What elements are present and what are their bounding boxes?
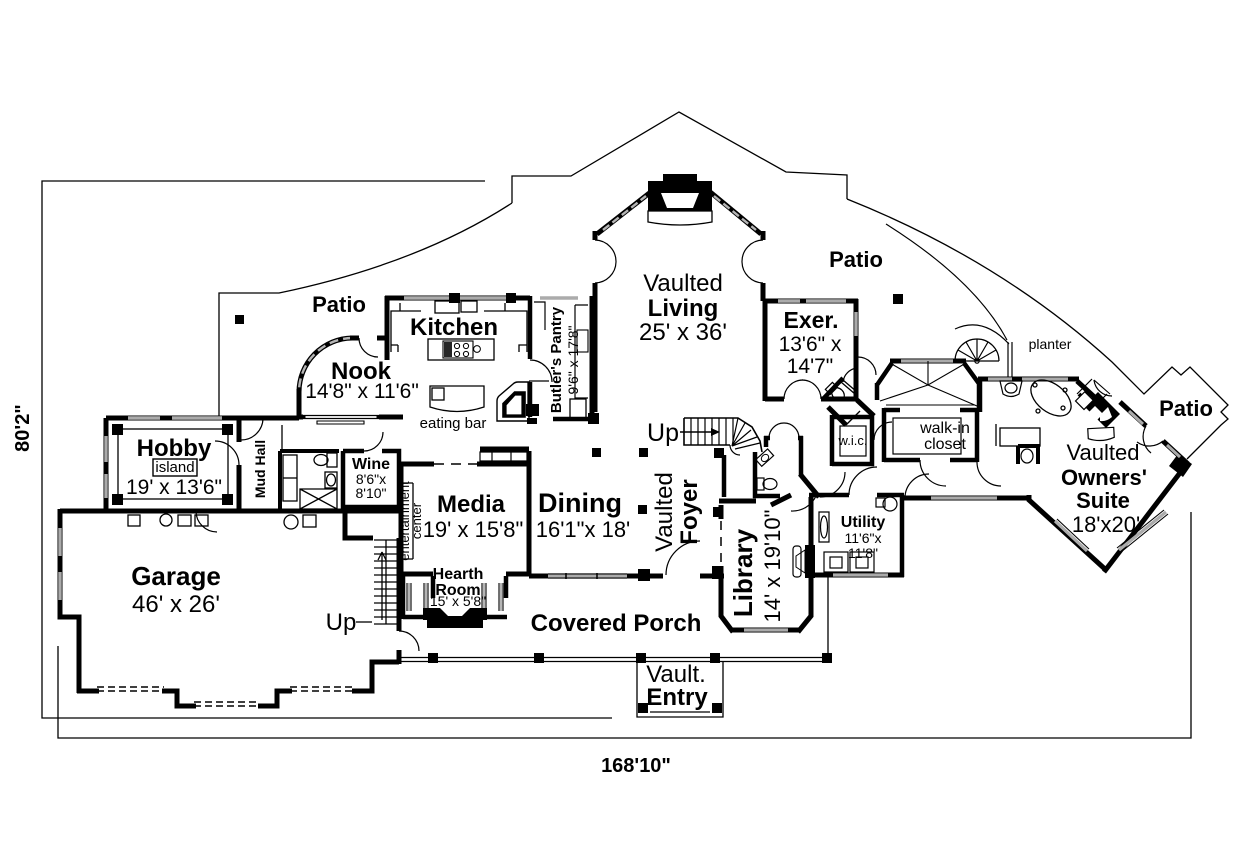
- svg-text:walk-in: walk-in: [919, 420, 970, 437]
- svg-text:19' x 13'6": 19' x 13'6": [126, 476, 222, 499]
- svg-text:19' x 15'8": 19' x 15'8": [423, 517, 524, 542]
- svg-text:center: center: [409, 502, 424, 539]
- svg-text:Entry: Entry: [646, 684, 708, 711]
- svg-text:eating bar: eating bar: [420, 415, 487, 432]
- svg-text:11'8": 11'8": [848, 545, 878, 561]
- svg-text:Hearth: Hearth: [433, 566, 484, 583]
- svg-text:Living: Living: [648, 295, 719, 322]
- svg-text:46' x 26': 46' x 26': [132, 591, 220, 618]
- svg-text:16'1"x 18': 16'1"x 18': [536, 517, 631, 542]
- svg-text:Patio: Patio: [312, 292, 366, 317]
- svg-text:Vaulted: Vaulted: [643, 270, 723, 297]
- svg-text:168'10": 168'10": [601, 755, 671, 777]
- svg-text:closet: closet: [924, 436, 966, 453]
- svg-text:Patio: Patio: [1159, 396, 1213, 421]
- svg-text:Foyer: Foyer: [676, 479, 703, 544]
- svg-text:11'6"x: 11'6"x: [845, 530, 882, 546]
- svg-text:Patio: Patio: [829, 247, 883, 272]
- svg-text:Owners': Owners': [1061, 465, 1147, 490]
- svg-text:Up: Up: [326, 609, 357, 636]
- svg-text:w.i.c.: w.i.c.: [838, 433, 868, 448]
- svg-text:Vaulted: Vaulted: [651, 472, 678, 552]
- svg-text:18'x20': 18'x20': [1072, 512, 1140, 537]
- svg-text:Vaulted: Vaulted: [1067, 440, 1140, 465]
- svg-text:Media: Media: [437, 491, 506, 518]
- svg-text:island: island: [155, 459, 194, 476]
- svg-text:Hobby: Hobby: [137, 435, 212, 462]
- svg-text:Up: Up: [647, 419, 679, 447]
- svg-text:Exer.: Exer.: [784, 307, 839, 333]
- svg-text:14'7": 14'7": [787, 355, 834, 378]
- svg-text:Dining: Dining: [538, 488, 622, 518]
- svg-text:14' x 19'10": 14' x 19'10": [760, 510, 785, 623]
- svg-text:Kitchen: Kitchen: [410, 314, 498, 341]
- svg-text:Suite: Suite: [1076, 488, 1130, 513]
- svg-text:Mud Hall: Mud Hall: [252, 440, 268, 498]
- svg-text:9'6" x 17'8": 9'6" x 17'8": [565, 325, 581, 394]
- svg-text:planter: planter: [1029, 336, 1072, 352]
- svg-text:Butler's Pantry: Butler's Pantry: [548, 306, 565, 413]
- svg-text:Garage: Garage: [131, 561, 221, 591]
- svg-text:Covered Porch: Covered Porch: [531, 610, 702, 637]
- svg-text:15' x 5'8": 15' x 5'8": [430, 593, 486, 609]
- svg-text:Utility: Utility: [841, 514, 886, 531]
- svg-text:8'10": 8'10": [355, 485, 386, 501]
- svg-text:Library: Library: [728, 528, 758, 617]
- svg-text:80'2": 80'2": [12, 404, 34, 452]
- svg-text:14'8" x 11'6": 14'8" x 11'6": [305, 380, 419, 403]
- svg-text:25' x 36': 25' x 36': [639, 319, 727, 346]
- svg-text:13'6" x: 13'6" x: [779, 333, 842, 356]
